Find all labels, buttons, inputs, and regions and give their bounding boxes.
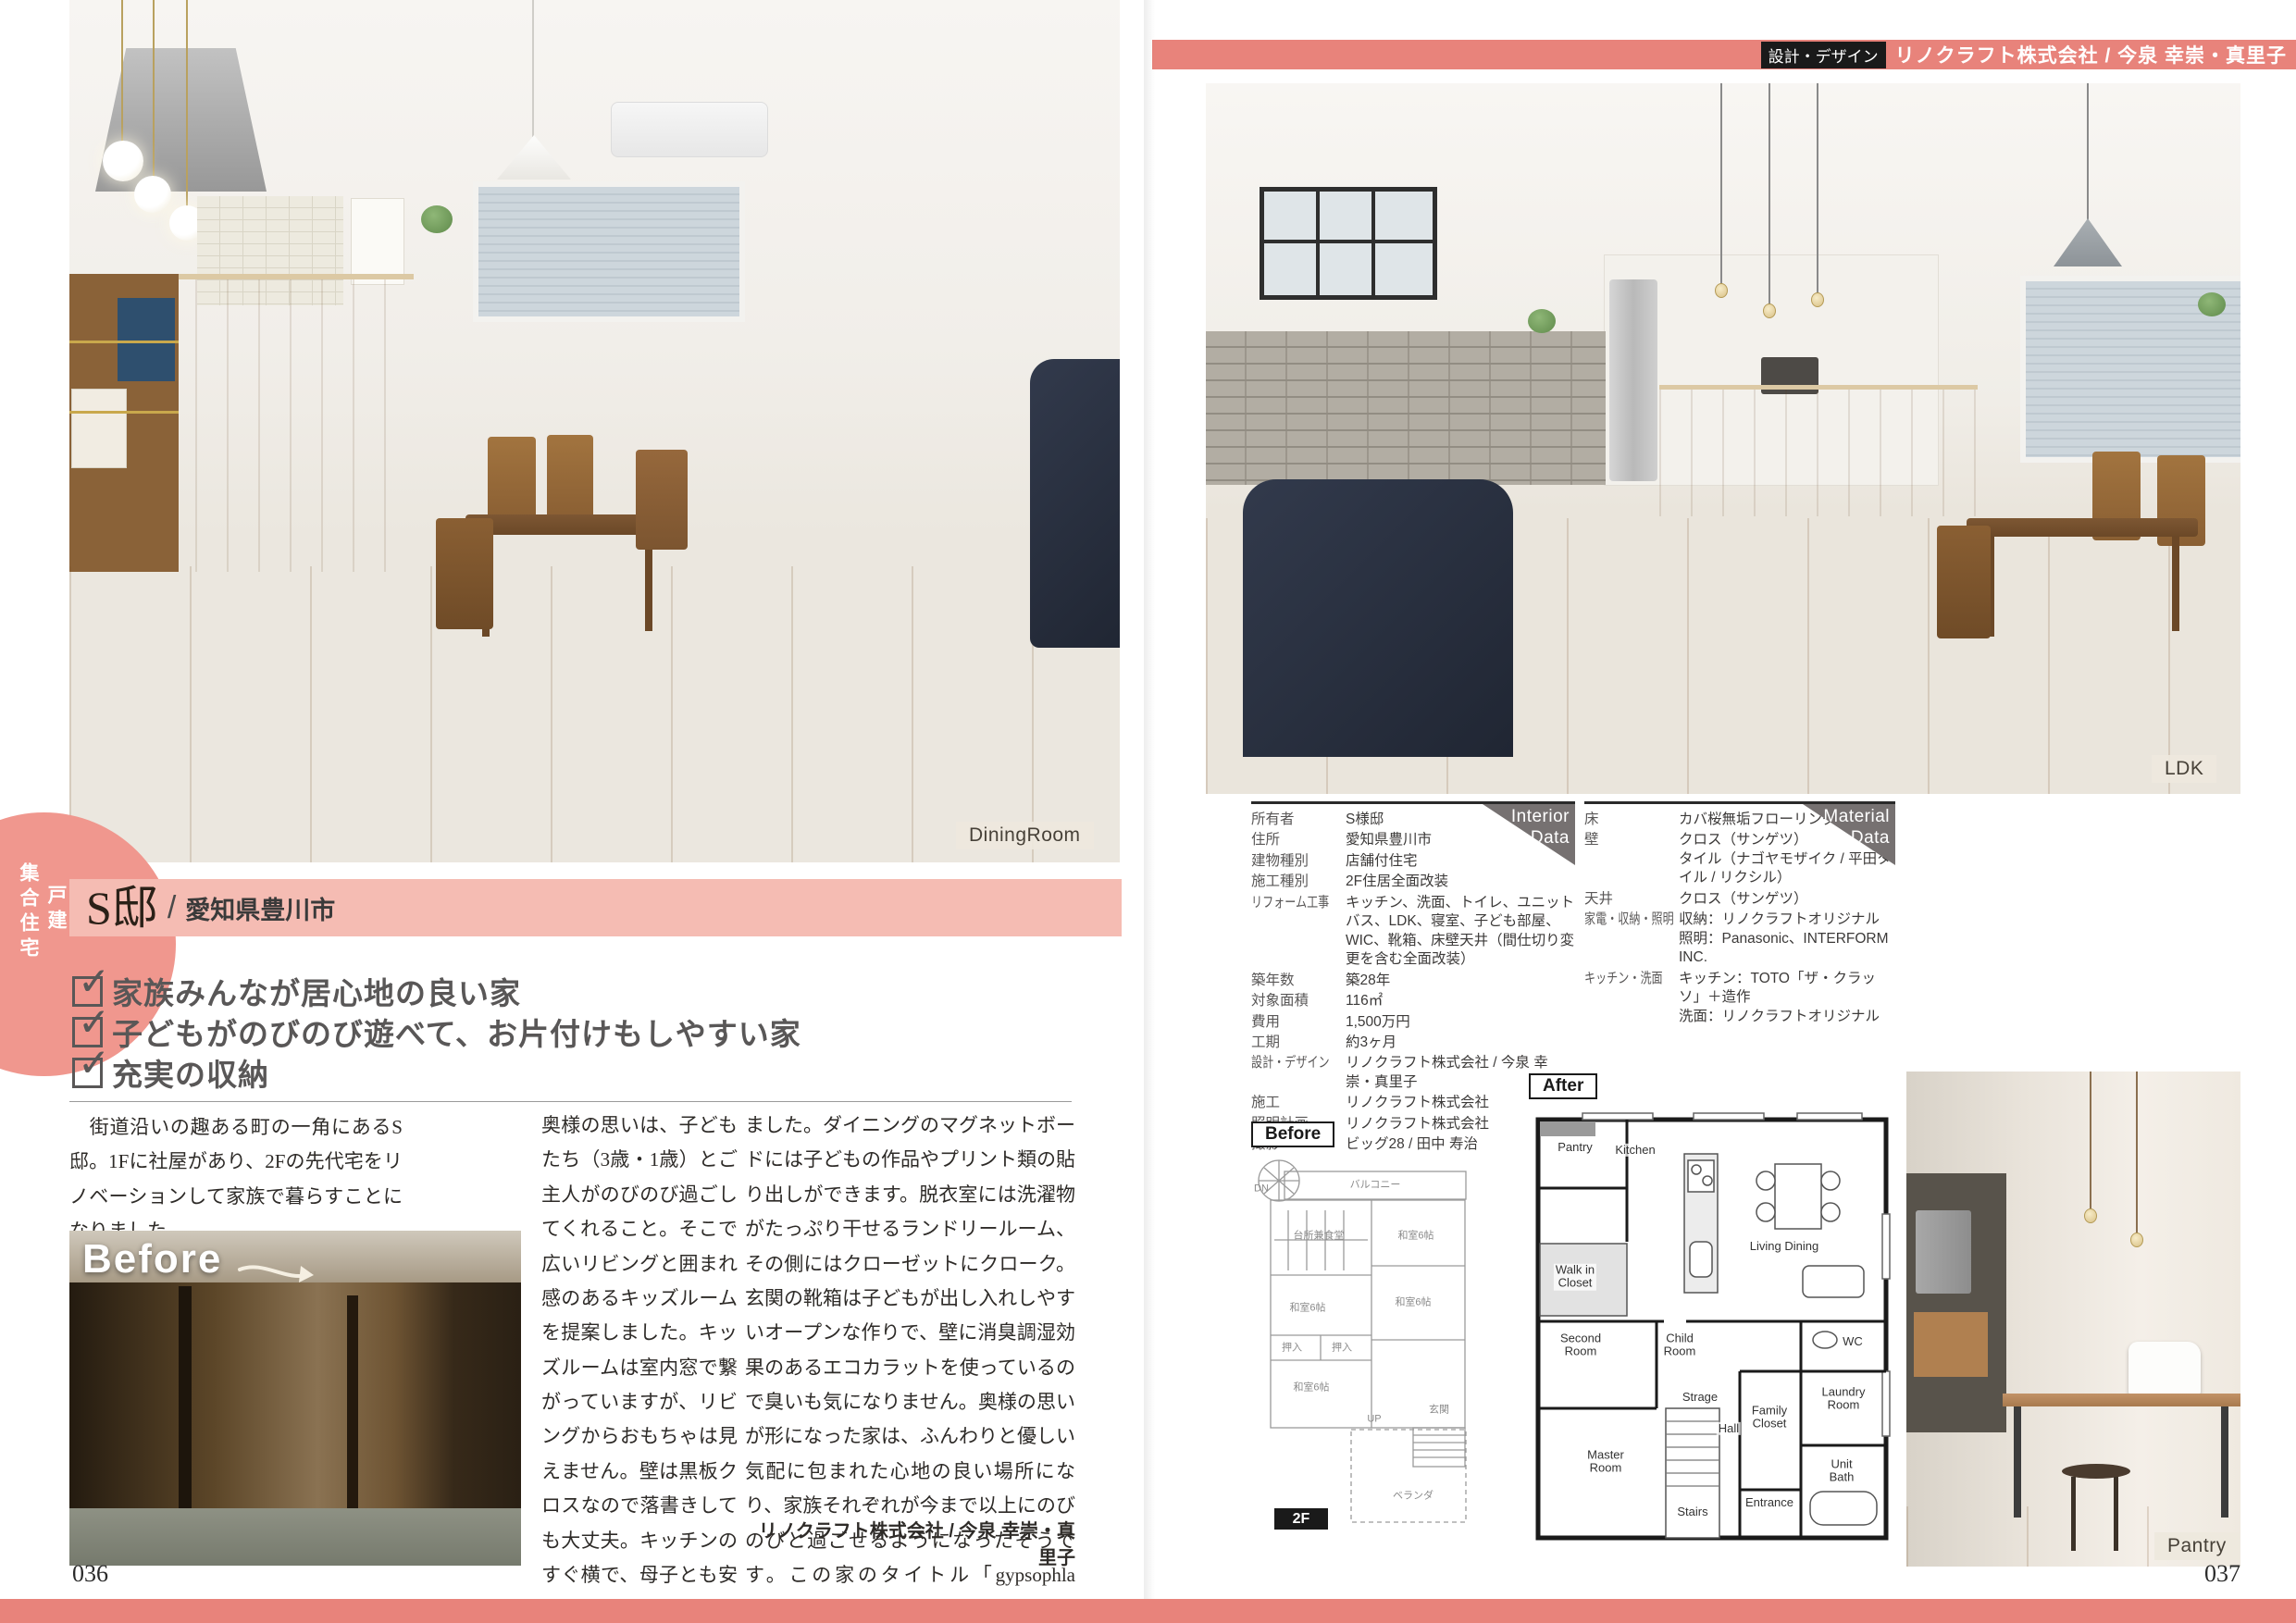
ldk-photo: LDK	[1206, 83, 2240, 794]
checklist-text: 充実の収納	[112, 1050, 269, 1095]
brass-rail	[69, 341, 179, 343]
dining-chair	[547, 435, 593, 520]
book-cover	[71, 389, 127, 468]
room-label: 押入	[1332, 1344, 1352, 1354]
room-label: Entrance	[1744, 1496, 1795, 1509]
table-leg	[2172, 537, 2179, 631]
checklist-item: ✓ 充実の収納	[72, 1053, 269, 1092]
category-label-multi: 集合住宅	[14, 862, 42, 962]
interior-data-table: Interior Data 所有者S様邸 住所愛知県豊川市 建物種別店舗付住宅 …	[1251, 801, 1575, 1059]
floor-tag: 2F	[1274, 1508, 1328, 1530]
divider	[69, 1101, 1072, 1102]
room-label: 台所兼食堂	[1294, 1232, 1345, 1242]
door-frame	[179, 1286, 192, 1518]
room-label: バルコニー	[1350, 1181, 1401, 1191]
dining-chair	[636, 450, 688, 550]
checkbox-icon: ✓	[72, 1058, 103, 1088]
dining-chair	[488, 437, 536, 522]
table-row: キッチン・洗面キッチン：TOTO「ザ・クラッソ」＋造作 洗面：リノクラフトオリジ…	[1584, 969, 1895, 1027]
checklist-text: 子どもがのびのび遊べて、お片付けもしやすい家	[112, 1010, 801, 1054]
desk-leg	[2014, 1406, 2021, 1518]
magazine-spread: DiningRoom 集合住宅 戸建 S邸 / 愛知県豊川市 ✓ 家族みんなが居…	[0, 0, 2296, 1623]
title-slash: /	[168, 890, 176, 926]
room-label: Master Room	[1585, 1449, 1626, 1476]
bulb-pendant-light	[2084, 1208, 2097, 1223]
article-credit: リノクラフト株式会社 / 今泉 幸崇・真里子	[745, 1516, 1075, 1569]
pendant-cord	[1817, 83, 1818, 294]
room-label: 和室6帖	[1293, 1383, 1329, 1394]
table-row: リフォーム工事キッチン、洗面、トイレ、ユニットバス、LDK、寝室、子ども部屋、W…	[1251, 893, 1575, 971]
header-credit: リノクラフト株式会社 / 今泉 幸崇・真里子	[1895, 41, 2287, 68]
checklist-item: ✓ 子どもがのびのび遊べて、お片付けもしやすい家	[72, 1012, 801, 1051]
pendant-cord	[1769, 83, 1770, 305]
room-label: 和室6帖	[1395, 1298, 1431, 1308]
room-label: 和室6帖	[1289, 1304, 1325, 1314]
kitchen-island	[1659, 389, 1978, 516]
sofa	[1030, 359, 1120, 648]
pantry-photo: Pantry	[1906, 1072, 2240, 1567]
table-row: 建物種別店舗付住宅	[1251, 851, 1575, 872]
room-label: Laundry Room	[1820, 1386, 1868, 1413]
bulb-pendant-light	[1763, 304, 1776, 318]
pendant-cord	[121, 0, 123, 146]
pendant-cord	[2090, 1072, 2091, 1210]
pendant-cord	[532, 0, 534, 137]
desk-leg	[2221, 1406, 2228, 1518]
title-band: S邸 / 愛知県豊川市	[69, 879, 1122, 936]
hallway-floor	[69, 1508, 521, 1566]
brass-rail	[69, 411, 179, 414]
house-location: 愛知県豊川市	[185, 890, 335, 926]
before-overlay-label: Before	[82, 1236, 222, 1282]
cabinet	[1914, 1312, 1988, 1377]
dining-chair	[436, 518, 493, 629]
oven	[1916, 1210, 1971, 1294]
dining-room-photo: DiningRoom	[69, 0, 1120, 862]
pendant-cord	[2136, 1072, 2138, 1234]
checklist-text: 家族みんなが居心地の良い家	[112, 969, 521, 1013]
table-row: 設計・デザインリノクラフト株式会社 / 今泉 幸崇・真里子	[1251, 1053, 1575, 1093]
cone-pendant-light	[2054, 218, 2122, 266]
room-label: 玄関	[1429, 1406, 1449, 1416]
dining-chair	[1937, 526, 1991, 638]
plant	[1528, 309, 1556, 333]
room-label: WC	[1841, 1335, 1865, 1348]
counter-top	[1659, 385, 1978, 390]
pendant-cord	[2087, 83, 2089, 220]
pendant-cord	[1720, 83, 1722, 285]
room-label: Second Room	[1558, 1332, 1603, 1359]
after-floorplan: Pantry Kitchen Walk in Closet Living Din…	[1527, 1103, 1897, 1558]
hanging-plant	[421, 205, 453, 233]
armchair	[1243, 479, 1513, 757]
bulb-pendant-light	[2130, 1233, 2143, 1247]
window-muntin	[1316, 192, 1320, 295]
table-row: 家電・収納・照明収納：リノクラフトオリジナル 照明：Panasonic、INTE…	[1584, 910, 1895, 968]
table-row: 住所愛知県豊川市	[1251, 830, 1575, 850]
photo-caption: DiningRoom	[956, 822, 1094, 849]
pendant-cord	[186, 0, 188, 211]
table-row: 天井クロス（サンゲツ）	[1584, 889, 1895, 910]
pendant-cord	[153, 0, 155, 181]
material-data-table: Material Data 床カバ桜無垢フローリング 壁クロス（サンゲツ） タイ…	[1584, 801, 1895, 980]
room-label: 和室6帖	[1397, 1232, 1433, 1242]
bulb-pendant-light	[1811, 292, 1824, 307]
cone-pendant-light	[497, 135, 571, 180]
plant	[2198, 292, 2226, 316]
after-plan-tag: After	[1529, 1073, 1597, 1099]
checklist-item: ✓ 家族みんなが居心地の良い家	[72, 972, 521, 1010]
room-label: Pantry	[1556, 1141, 1595, 1154]
page-gutter	[1144, 0, 1155, 1599]
house-title: S邸	[86, 879, 158, 936]
table-row: 費用1,500万円	[1251, 1012, 1575, 1033]
door-frame	[347, 1295, 358, 1508]
brick-half-wall	[1206, 331, 1606, 485]
footer-strip	[0, 1599, 2296, 1623]
room-label: Stairs	[1675, 1505, 1709, 1518]
before-floorplan: DN バルコニー 台所兼食堂 和室6帖 和室6帖 和室6帖 押入 押入 和室6帖…	[1251, 1155, 1534, 1562]
globe-pendant-light	[103, 141, 143, 181]
book-cover	[118, 298, 175, 381]
room-label: Family Closet	[1750, 1405, 1789, 1431]
article-column-1: 街道沿いの趣ある町の一角にあるS邸。1Fに社屋があり、2Fの先代宅をリノベーショ…	[69, 1110, 403, 1249]
before-arrow-icon	[236, 1257, 319, 1294]
page-number-right: 037	[2204, 1560, 2240, 1588]
room-label: Hall	[1717, 1422, 1741, 1435]
article-column-2: 奥様の思いは、子どもたち（3歳・1歳）とご主人がのびのび過ごしてくれること。そこ…	[541, 1109, 738, 1623]
table-row: 築年数築28年	[1251, 971, 1575, 991]
table-row: 対象面積116㎡	[1251, 991, 1575, 1011]
wood-floor	[69, 566, 1120, 862]
room-label: Walk in Closet	[1554, 1264, 1596, 1291]
before-photo: Before	[69, 1231, 521, 1566]
globe-pendant-light	[134, 176, 171, 213]
header-tag: 設計・デザイン	[1761, 42, 1886, 68]
category-label-single: 戸建	[42, 885, 69, 935]
room-label: ベランダ	[1393, 1492, 1433, 1502]
dining-table	[1967, 518, 2198, 537]
room-label: DN	[1254, 1184, 1269, 1195]
window-muntin	[1371, 192, 1375, 295]
interior-window	[1260, 187, 1437, 300]
room-label: Child Room	[1662, 1332, 1698, 1359]
header-band: 設計・デザイン リノクラフト株式会社 / 今泉 幸崇・真里子	[1152, 40, 2296, 69]
page-number-left: 036	[72, 1560, 108, 1588]
desk-top	[2003, 1394, 2240, 1406]
room-label: UP	[1367, 1415, 1381, 1425]
room-label: Strage	[1681, 1391, 1719, 1404]
refrigerator	[1609, 279, 1657, 481]
air-conditioner	[611, 102, 768, 157]
bulb-pendant-light	[1715, 283, 1728, 298]
sewing-machine	[2128, 1342, 2201, 1395]
before-plan-tag: Before	[1251, 1121, 1334, 1147]
photo-caption: Pantry	[2154, 1532, 2240, 1560]
wall-board	[351, 198, 404, 285]
room-label: Living Dining	[1748, 1240, 1820, 1253]
window-shade	[473, 181, 745, 322]
room-label: Unit Bath	[1828, 1458, 1856, 1485]
table-row: 工期約3ヶ月	[1251, 1033, 1575, 1053]
window-muntin	[1264, 240, 1433, 243]
table-row: 施工種別2F住居全面改装	[1251, 872, 1575, 892]
photo-caption: LDK	[2152, 755, 2216, 783]
table-row: 壁クロス（サンゲツ） タイル（ナゴヤモザイク / 平田タイル / リクシル）	[1584, 830, 1895, 888]
room-label: Kitchen	[1613, 1144, 1657, 1157]
room-label: 押入	[1282, 1344, 1302, 1354]
